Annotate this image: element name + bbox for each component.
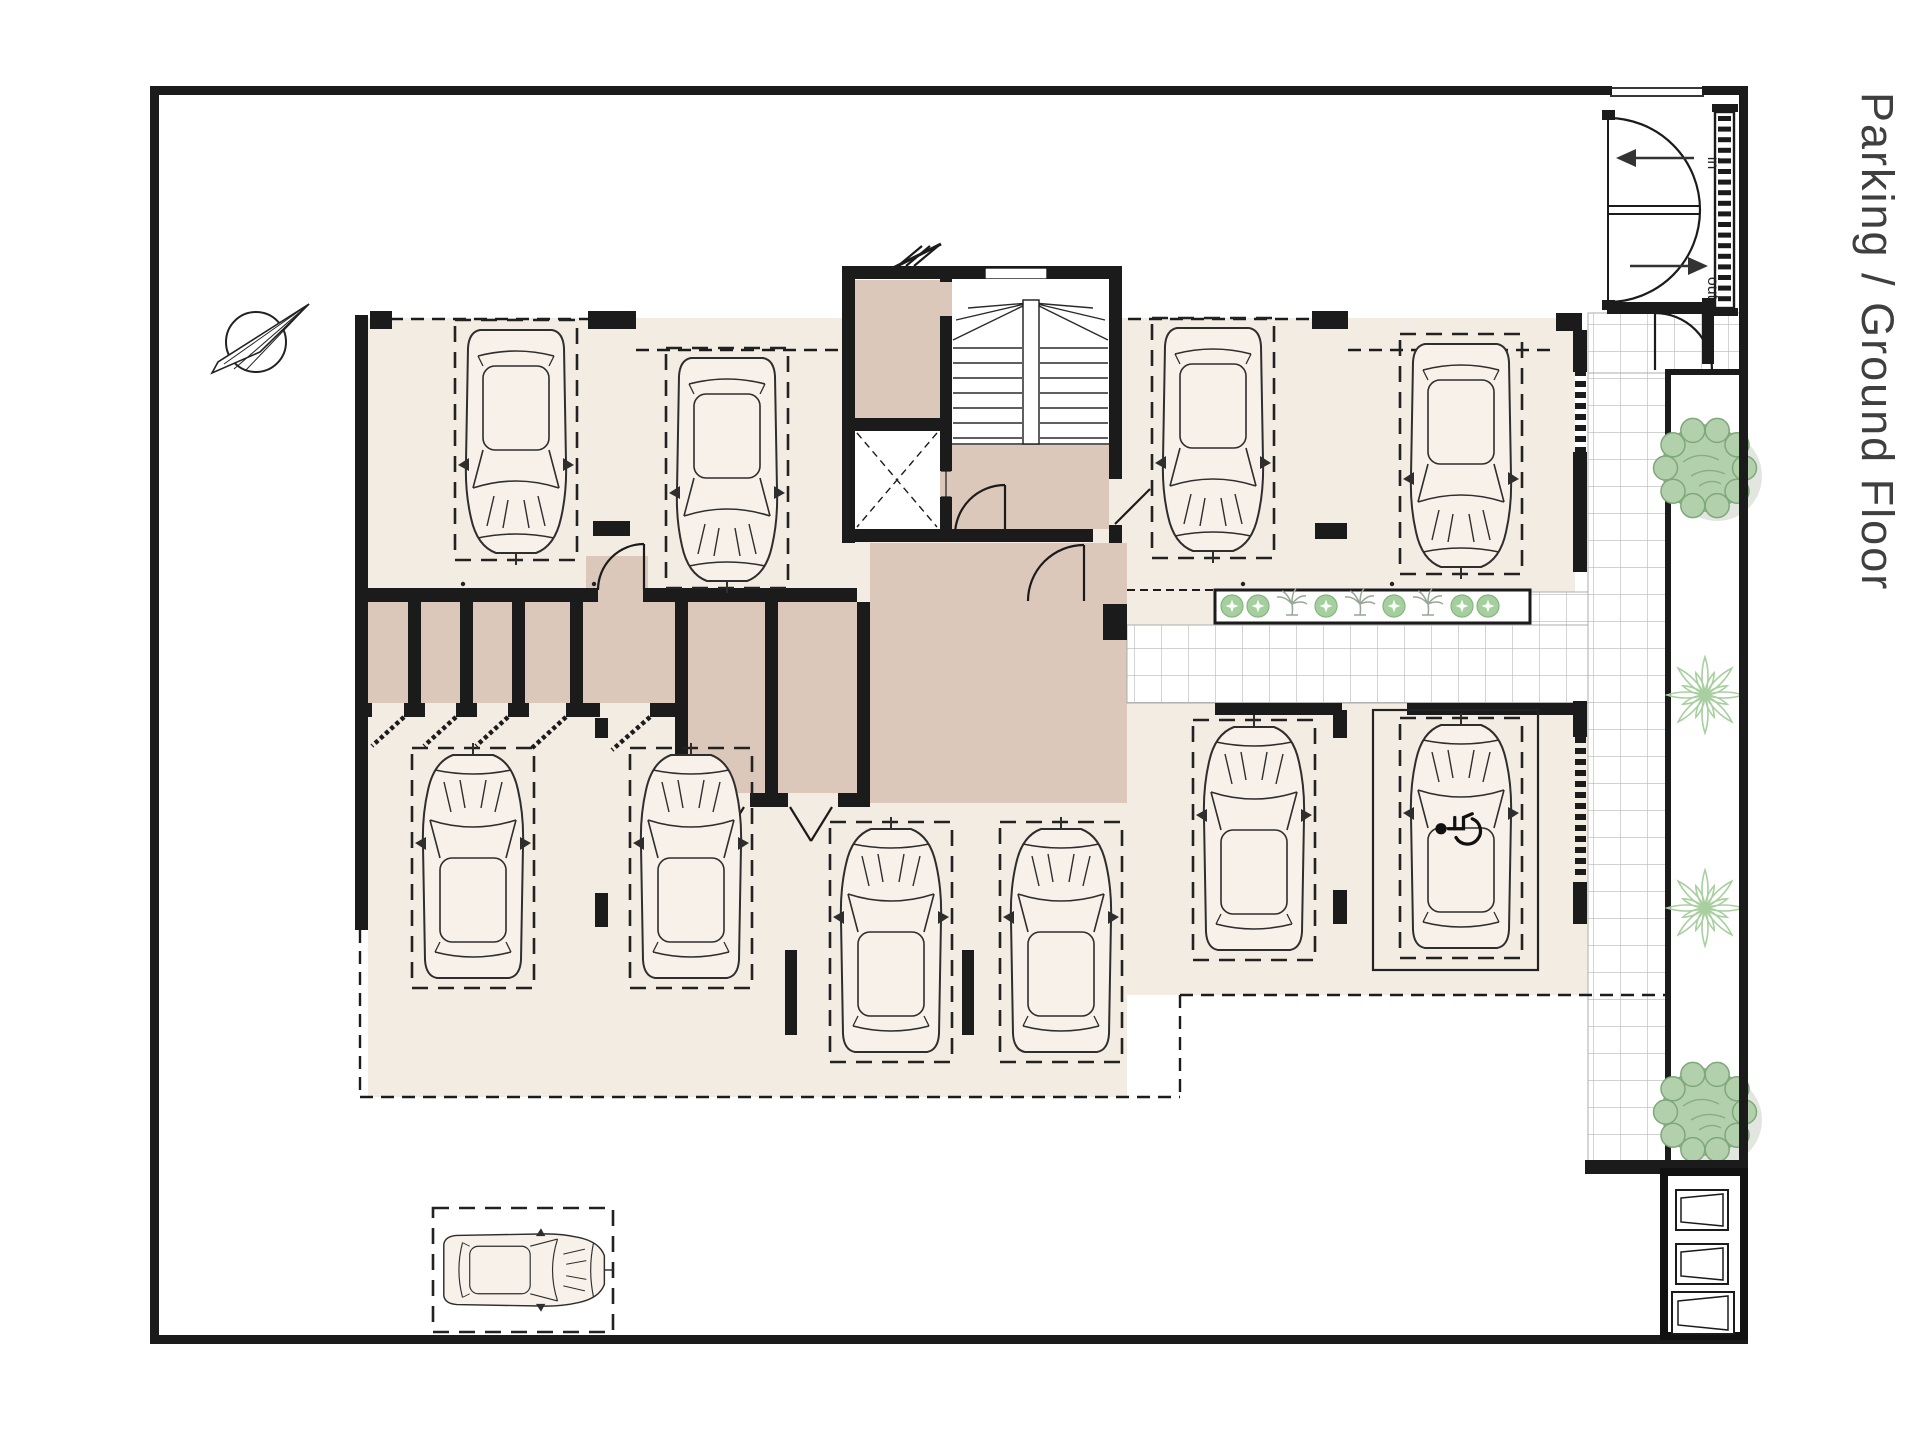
car	[669, 358, 785, 593]
page-title: Parking / Ground Floor	[1852, 92, 1903, 591]
car	[1003, 817, 1119, 1052]
in-arrow	[1616, 149, 1694, 167]
car	[1155, 328, 1271, 563]
entrance-gate: in out	[1616, 112, 1734, 308]
floor-plan: in out Parking / Ground Floor	[0, 0, 1920, 1454]
staircase	[952, 279, 1109, 445]
out-arrow	[1630, 257, 1708, 275]
shrub-icon	[1477, 595, 1499, 617]
out-label: out	[1704, 277, 1721, 300]
section-cut-mark	[893, 244, 941, 268]
shrub-icon	[1383, 595, 1405, 617]
car	[833, 817, 949, 1052]
shrub-icon	[1315, 595, 1337, 617]
shrub-icon	[1247, 595, 1269, 617]
in-label: in	[1704, 157, 1721, 169]
palm-planter-strip	[1215, 589, 1530, 623]
handicap-car	[1403, 713, 1519, 948]
car	[1403, 344, 1519, 579]
car	[444, 1228, 613, 1312]
floor-plan-page: in out Parking / Ground Floor	[0, 0, 1920, 1454]
north-arrow-icon	[212, 304, 309, 373]
car	[415, 743, 531, 978]
shrub-icon	[1451, 595, 1473, 617]
elevator	[855, 431, 951, 529]
shrub-icon	[1221, 595, 1243, 617]
entrance-double-gate	[1602, 110, 1700, 310]
car	[458, 330, 574, 565]
utility-boxes	[1664, 1172, 1744, 1336]
car	[633, 743, 749, 978]
car	[1196, 715, 1312, 950]
